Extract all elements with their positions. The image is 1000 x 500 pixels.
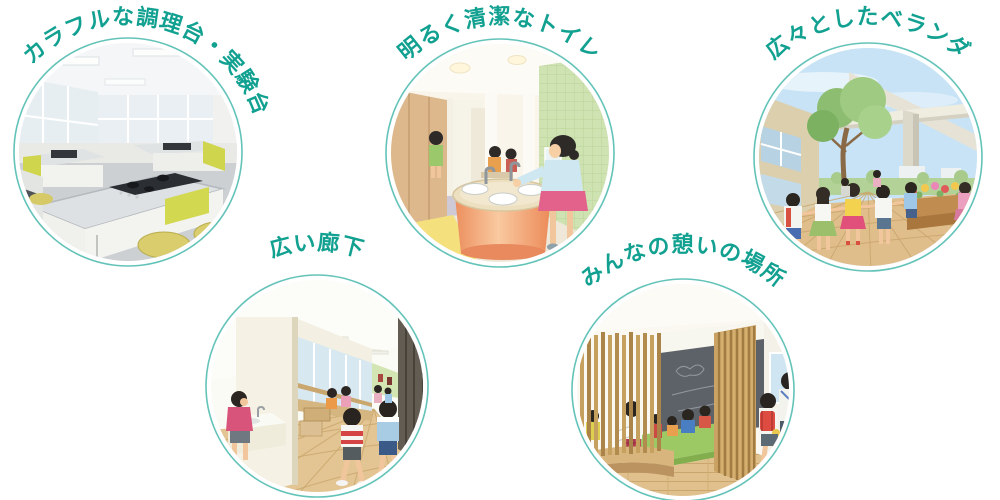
feature-toilet — [385, 38, 615, 268]
features-graphic: カラフルな調理台・実験台 — [0, 0, 1000, 500]
wood-slats-right — [714, 325, 756, 487]
feature-veranda — [743, 42, 983, 272]
feature-label-lounge: みんなの憩いの場所 — [576, 232, 789, 293]
feature-label-corridor: 広い廊下 — [267, 230, 367, 263]
school-features-page: カラフルな調理台・実験台 — [0, 0, 1000, 500]
feature-lounge — [568, 275, 806, 500]
feature-kitchen — [13, 37, 243, 267]
corridor-illustration — [192, 271, 432, 500]
veranda-illustration — [743, 42, 983, 272]
feature-corridor — [192, 271, 432, 500]
lounge-illustration — [568, 275, 806, 500]
